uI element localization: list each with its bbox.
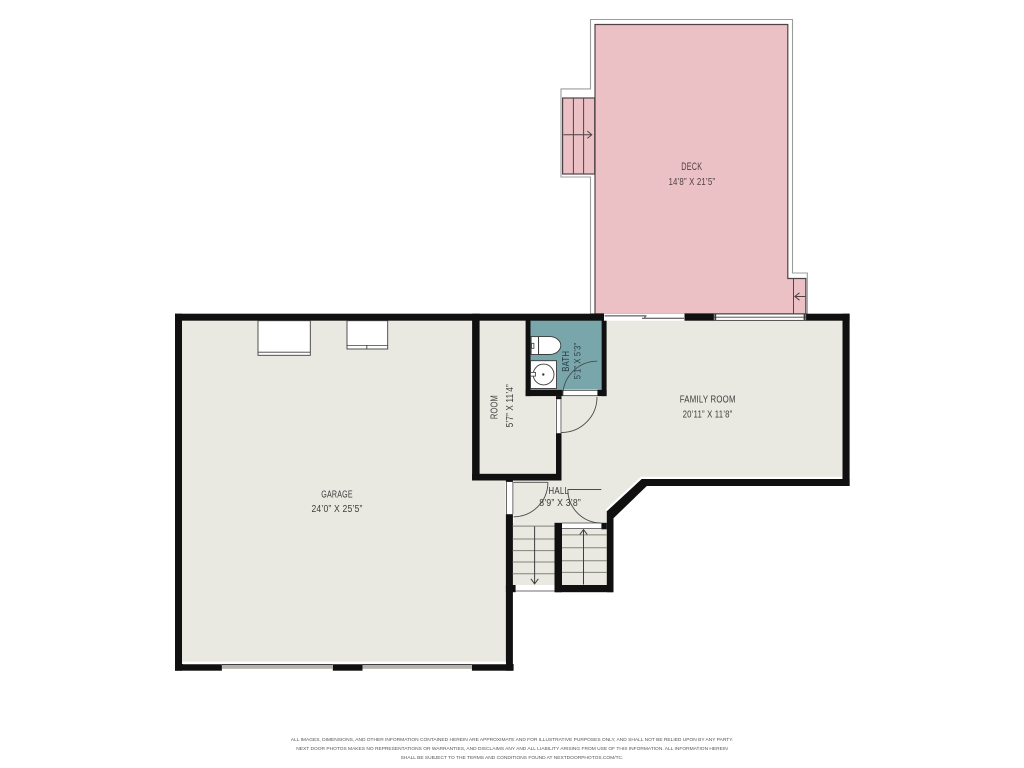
svg-text:ALL IMAGES, DIMENSIONS, AND OT: ALL IMAGES, DIMENSIONS, AND OTHER INFORM… (291, 737, 733, 743)
svg-text:5’7” X 11’4”: 5’7” X 11’4” (504, 384, 515, 427)
svg-text:5’1” X 5’3”: 5’1” X 5’3” (572, 343, 583, 379)
svg-text:SHALL BE SUBJECT TO THE TERMS: SHALL BE SUBJECT TO THE TERMS AND CONDIT… (401, 755, 624, 761)
svg-text:20’11” X 11’8”: 20’11” X 11’8” (683, 409, 733, 420)
svg-text:GARAGE: GARAGE (321, 488, 353, 500)
svg-text:14’8” X 21’5”: 14’8” X 21’5” (668, 176, 715, 187)
svg-text:8’9” X 3’8”: 8’9” X 3’8” (539, 497, 581, 508)
svg-text:FAMILY ROOM: FAMILY ROOM (680, 394, 736, 405)
svg-text:HALL: HALL (548, 485, 569, 496)
svg-text:NEXT DOOR PHOTOS MAKES NO REPR: NEXT DOOR PHOTOS MAKES NO REPRESENTATION… (296, 746, 728, 752)
svg-text:ROOM: ROOM (488, 395, 499, 419)
svg-text:DECK: DECK (681, 160, 703, 172)
svg-text:24’0” X 25’5”: 24’0” X 25’5” (311, 503, 362, 514)
svg-text:BATH: BATH (560, 351, 571, 372)
